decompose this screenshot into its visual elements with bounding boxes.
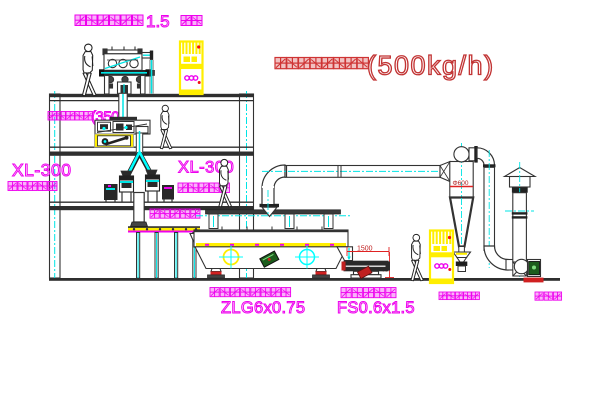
svg-text:XL-300: XL-300 (12, 160, 71, 180)
svg-text:FS0.6x1.5: FS0.6x1.5 (337, 299, 415, 317)
svg-text:Φ600: Φ600 (453, 180, 469, 187)
svg-text:ZLG6x0.75: ZLG6x0.75 (221, 299, 305, 317)
svg-text:1500: 1500 (357, 246, 373, 253)
svg-text:(500kg/h): (500kg/h) (367, 51, 495, 81)
svg-text:1.5: 1.5 (146, 12, 170, 31)
